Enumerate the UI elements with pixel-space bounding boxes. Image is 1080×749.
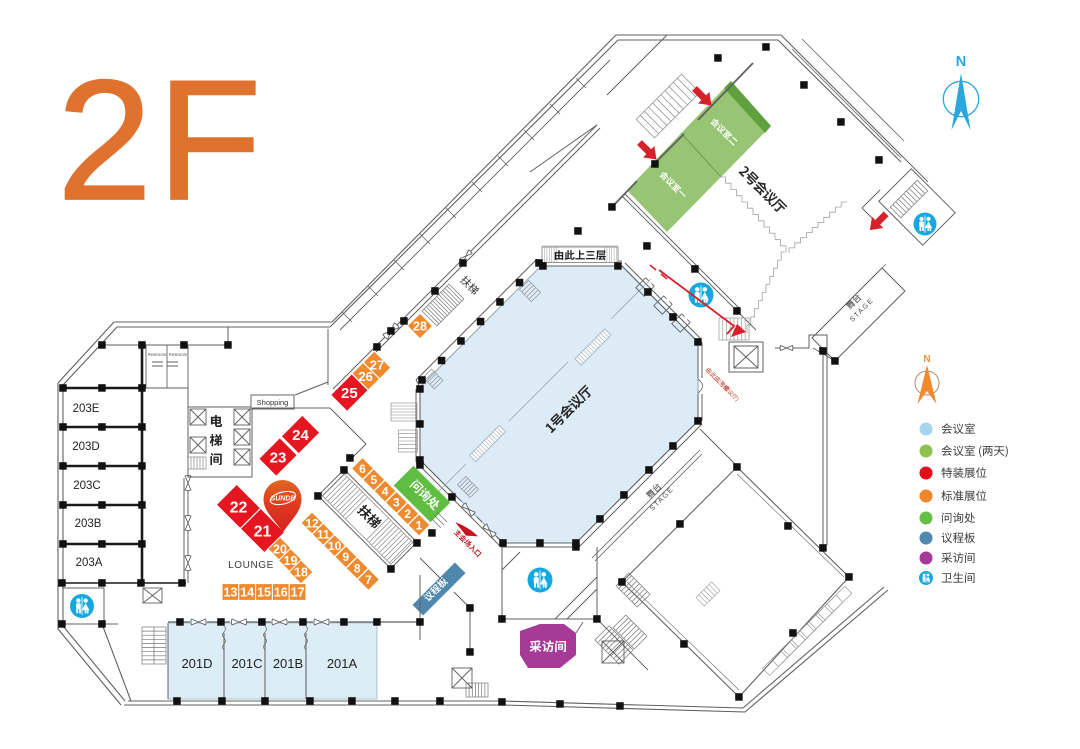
- svg-text:203D: 203D: [72, 441, 100, 453]
- svg-text:14: 14: [240, 586, 254, 600]
- svg-text:203A: 203A: [76, 557, 103, 569]
- svg-text:201A: 201A: [327, 656, 358, 671]
- svg-text:8: 8: [354, 562, 361, 576]
- svg-text:12: 12: [305, 516, 319, 530]
- svg-text:Restroom: Restroom: [148, 352, 167, 357]
- svg-text:18: 18: [294, 566, 308, 580]
- svg-text:Shopping: Shopping: [257, 398, 289, 407]
- svg-text:11: 11: [317, 528, 330, 542]
- svg-text:21: 21: [254, 523, 272, 540]
- svg-text:22: 22: [230, 499, 248, 516]
- svg-text:10: 10: [328, 539, 342, 553]
- svg-text:LOUNGE: LOUNGE: [228, 560, 274, 571]
- svg-text:13: 13: [223, 586, 237, 600]
- svg-text:6: 6: [359, 462, 366, 476]
- svg-text:4: 4: [382, 484, 389, 498]
- svg-text:203E: 203E: [73, 403, 100, 415]
- svg-text:3: 3: [393, 496, 400, 510]
- svg-text:28: 28: [413, 320, 427, 334]
- svg-text:17: 17: [291, 586, 305, 600]
- svg-text:N: N: [956, 54, 966, 70]
- svg-text:26: 26: [358, 369, 372, 384]
- svg-text:25: 25: [341, 385, 358, 402]
- svg-text:201C: 201C: [231, 656, 262, 671]
- svg-text:203C: 203C: [73, 480, 101, 492]
- svg-text:2: 2: [404, 507, 411, 521]
- svg-text:201D: 201D: [181, 656, 212, 671]
- svg-text:23: 23: [270, 449, 287, 466]
- svg-text:Restroom: Restroom: [169, 352, 188, 357]
- svg-text:9: 9: [343, 550, 350, 564]
- svg-text:1: 1: [416, 518, 423, 532]
- svg-text:15: 15: [257, 586, 271, 600]
- svg-text:201B: 201B: [273, 656, 303, 671]
- svg-text:203B: 203B: [75, 518, 102, 530]
- svg-text:5: 5: [370, 473, 377, 487]
- svg-text:N: N: [923, 354, 930, 365]
- svg-text:16: 16: [274, 586, 288, 600]
- svg-text:2F: 2F: [57, 45, 267, 236]
- svg-text:SUNDB: SUNDB: [271, 496, 296, 503]
- svg-text:24: 24: [292, 427, 309, 444]
- svg-text:7: 7: [365, 573, 372, 587]
